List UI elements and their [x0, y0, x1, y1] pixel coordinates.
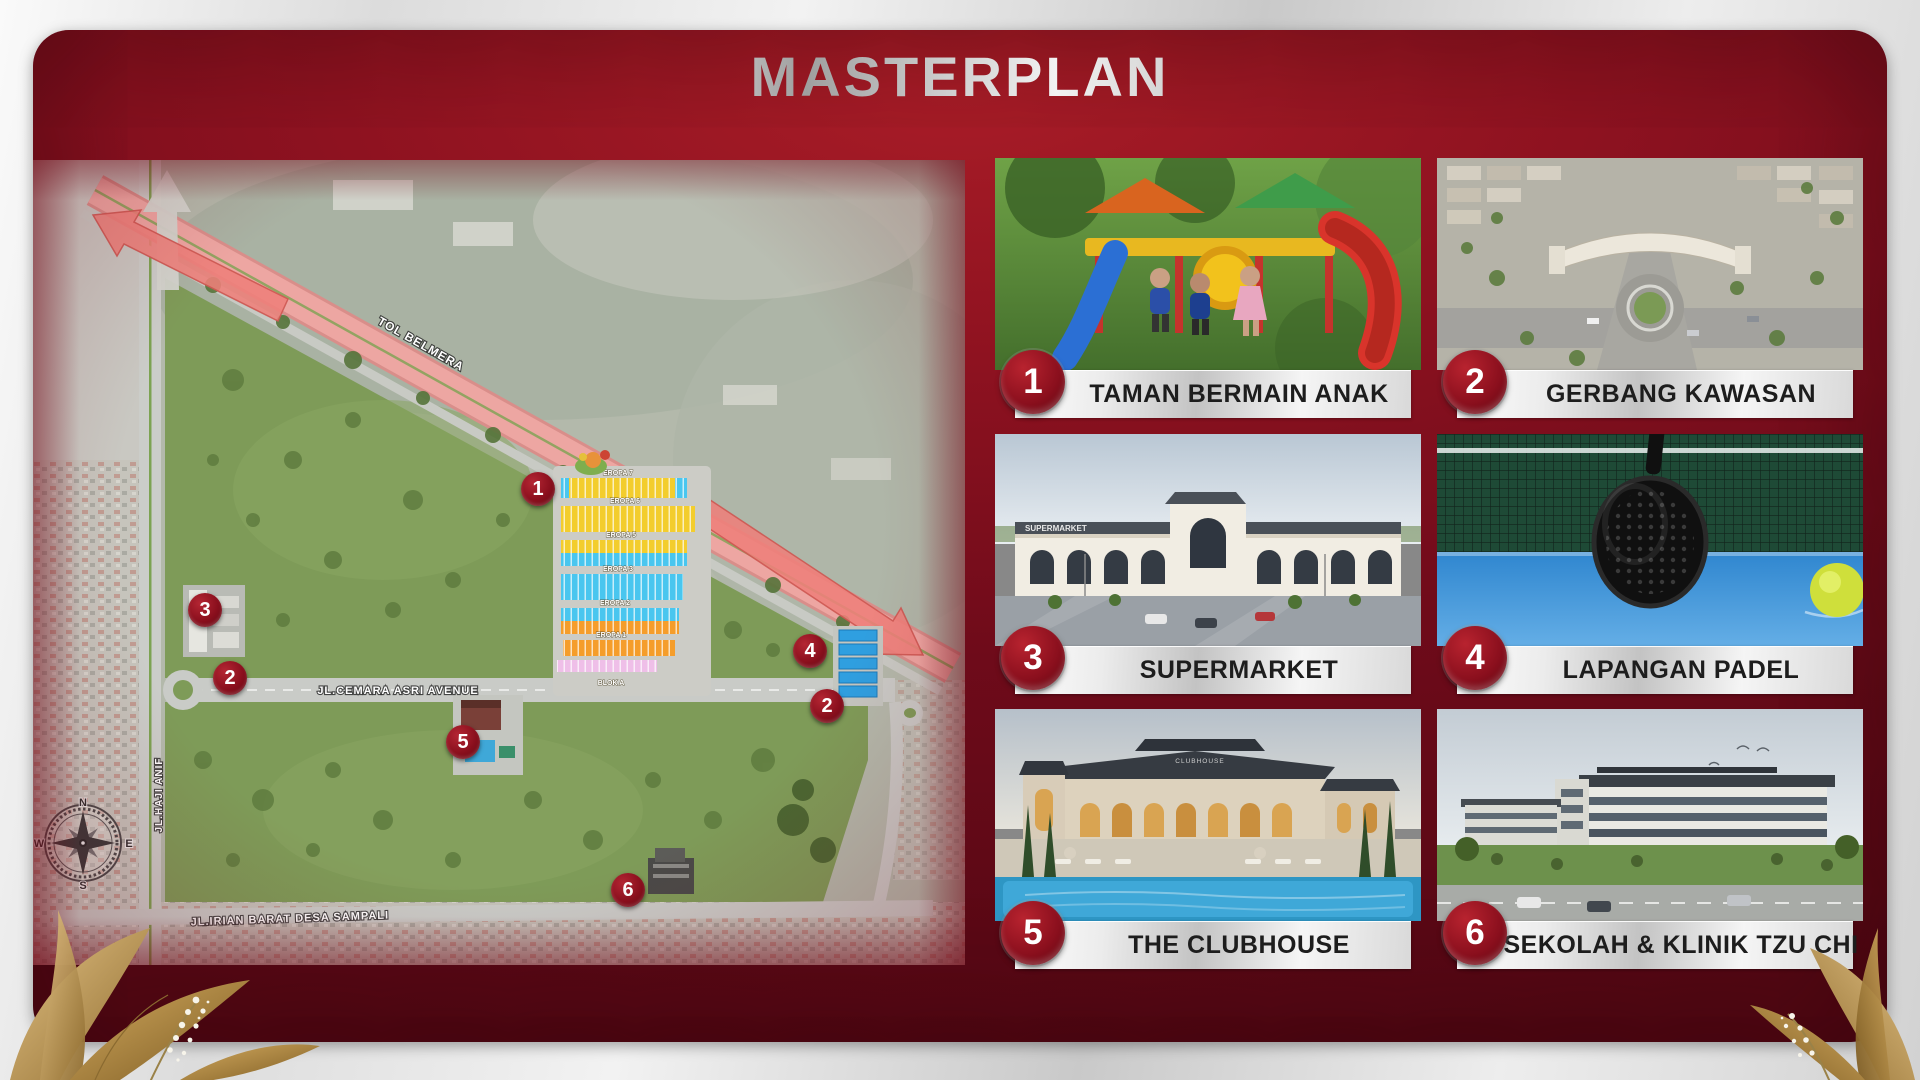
map-marker-4: 4: [793, 634, 827, 668]
legend-label: GERBANG KAWASAN: [1546, 380, 1816, 409]
avenue-label: JL.CEMARA ASRI AVENUE: [317, 685, 478, 697]
legend-card-the-clubhouse: CLUBHOUSE: [995, 709, 1421, 969]
map-marker-2-west-number: 2: [224, 667, 235, 690]
legend-badge-2-number: 2: [1465, 362, 1484, 402]
legend-badge-5-number: 5: [1023, 913, 1042, 953]
legend-label-bar: SUPERMARKET: [1015, 646, 1411, 694]
clubhouse-sign: CLUBHOUSE: [1175, 758, 1224, 765]
map-marker-6: 6: [611, 873, 645, 907]
legend-badge-1: 1: [1001, 350, 1065, 414]
block-label-eropa5: EROPA 5: [606, 532, 636, 539]
housing-estate: EROPA 7 EROPA 6 EROPA 5 EROPA 3 EROPA 2 …: [553, 466, 711, 696]
padel-courts: [833, 626, 883, 706]
gate-aerial-photo: [1437, 158, 1863, 370]
compass-w: W: [34, 838, 45, 850]
clubhouse-photo: CLUBHOUSE: [995, 709, 1421, 921]
compass-s: S: [79, 880, 86, 892]
west-road-label: JL.HAJI ANIF: [154, 758, 165, 833]
legend-badge-4-number: 4: [1465, 638, 1484, 678]
block-label-eropa7: EROPA 7: [603, 470, 633, 477]
block-label-eropa1: EROPA 1: [596, 632, 626, 639]
map-marker-2-west: 2: [213, 661, 247, 695]
padel-photo: [1437, 434, 1863, 646]
supermarket-photo: SUPERMARKET: [995, 434, 1421, 646]
page-title: MASTERPLAN: [0, 44, 1920, 109]
legend-badge-6: 6: [1443, 901, 1507, 965]
map-marker-2-east-number: 2: [821, 695, 832, 718]
supermarket-sign: SUPERMARKET: [1025, 524, 1087, 533]
map-marker-5: 5: [446, 725, 480, 759]
compass-n: N: [79, 797, 87, 809]
legend-label: SEKOLAH & KLINIK TZU CHI: [1503, 931, 1858, 960]
map-graphic: EROPA 7 EROPA 6 EROPA 5 EROPA 3 EROPA 2 …: [33, 160, 965, 965]
map-marker-2-east: 2: [810, 689, 844, 723]
school-photo: [1437, 709, 1863, 921]
legend-badge-6-number: 6: [1465, 913, 1484, 953]
legend-label: TAMAN BERMAIN ANAK: [1089, 380, 1388, 409]
block-label-eropa6: EROPA 6: [610, 498, 640, 505]
legend-label: THE CLUBHOUSE: [1128, 931, 1350, 960]
map-marker-1: 1: [521, 472, 555, 506]
legend-card-gerbang-kawasan: GERBANG KAWASAN 2: [1437, 158, 1863, 418]
legend-card-supermarket: SUPERMARKET SUPERMARKET 3: [995, 434, 1421, 694]
map-marker-6-number: 6: [622, 879, 633, 902]
legend-card-sekolah-klinik-tzu-chi: SEKOLAH & KLINIK TZU CHI 6: [1437, 709, 1863, 969]
legend-label: LAPANGAN PADEL: [1563, 656, 1800, 685]
legend-label: SUPERMARKET: [1140, 656, 1339, 685]
legend-badge-4: 4: [1443, 626, 1507, 690]
map-marker-3: 3: [188, 593, 222, 627]
map-marker-4-number: 4: [804, 640, 815, 663]
slide: MASTERPLAN: [0, 0, 1920, 1080]
map-marker-5-number: 5: [457, 731, 468, 754]
block-label-eropa2: EROPA 2: [600, 600, 630, 607]
compass-e: E: [125, 838, 132, 850]
legend-badge-2: 2: [1443, 350, 1507, 414]
masterplan-map: EROPA 7 EROPA 6 EROPA 5 EROPA 3 EROPA 2 …: [33, 160, 965, 965]
legend-label-bar: SEKOLAH & KLINIK TZU CHI: [1457, 921, 1853, 969]
south-road: [53, 908, 933, 918]
legend-badge-5: 5: [1001, 901, 1065, 965]
legend-label-bar: TAMAN BERMAIN ANAK: [1015, 370, 1411, 418]
map-marker-3-number: 3: [199, 599, 210, 622]
legend-badge-3: 3: [1001, 626, 1065, 690]
map-marker-1-number: 1: [532, 478, 543, 501]
legend-badge-3-number: 3: [1023, 638, 1042, 678]
playground-photo: [995, 158, 1421, 370]
block-label-eropa3: EROPA 3: [603, 566, 633, 573]
legend-badge-1-number: 1: [1023, 362, 1042, 402]
legend-label-bar: LAPANGAN PADEL: [1457, 646, 1853, 694]
legend-label-bar: GERBANG KAWASAN: [1457, 370, 1853, 418]
block-label-blok-a: BLOK A: [598, 680, 625, 687]
legend-label-bar: THE CLUBHOUSE: [1015, 921, 1411, 969]
legend-card-lapangan-padel: LAPANGAN PADEL 4: [1437, 434, 1863, 694]
legend-card-taman-bermain-anak: TAMAN BERMAIN ANAK 1: [995, 158, 1421, 418]
